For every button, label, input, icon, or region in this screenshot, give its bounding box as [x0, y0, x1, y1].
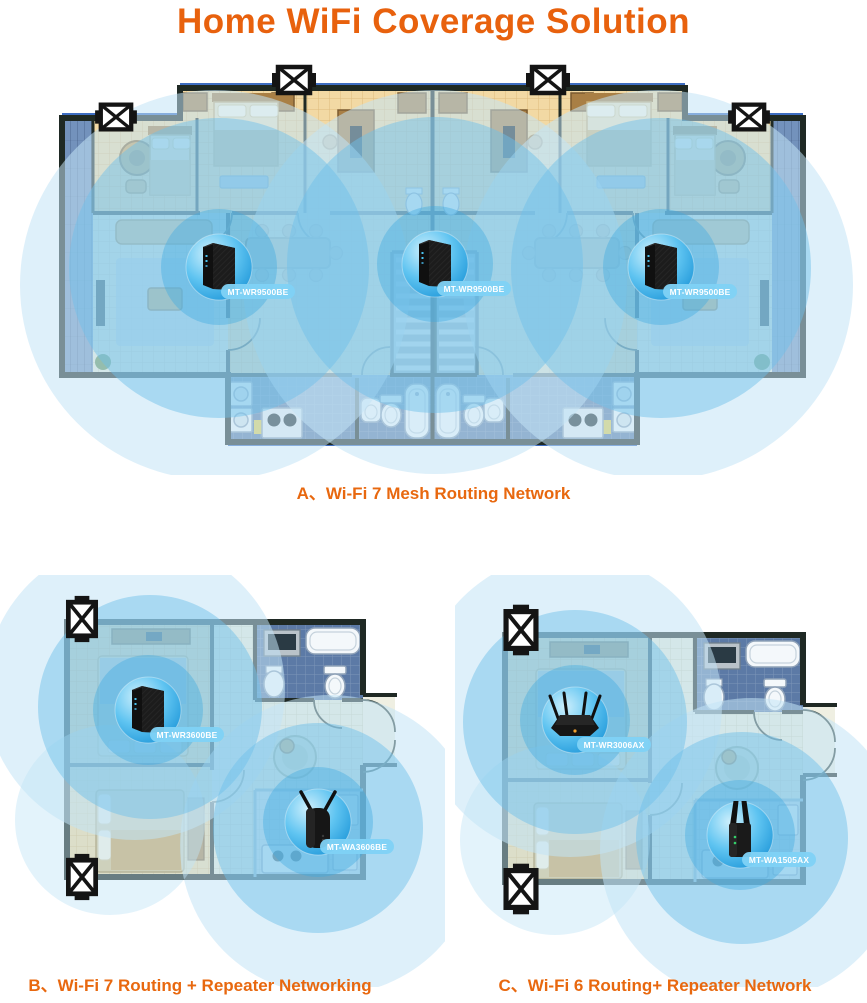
device-label: MT-WA3606BE [327, 842, 388, 852]
device-label: MT-WR3006AX [584, 740, 645, 750]
wifi7-router-icon [645, 243, 677, 290]
page-title: Home WiFi Coverage Solution [0, 2, 867, 42]
infographic-home-wifi-coverage: Home WiFi Coverage Solution [0, 0, 867, 1003]
floor-plan-b: MT-WR3600BE MT-WA3606BE [0, 575, 445, 987]
wifi7-router-icon [419, 240, 451, 287]
floor-plan-c: MT-WR3006AX MT-WA1505AX [455, 575, 867, 987]
device-label: MT-WR3600BE [157, 730, 218, 740]
device-label: MT-WR9500BE [444, 284, 505, 294]
device-label: MT-WR9500BE [670, 287, 731, 297]
caption-section-c: C、Wi-Fi 6 Routing+ Repeater Network [455, 971, 855, 996]
wifi7-router-icon [203, 243, 235, 290]
caption-section-a: A、Wi-Fi 7 Mesh Routing Network [0, 479, 867, 504]
device-label: MT-WR9500BE [228, 287, 289, 297]
floor-plan-a: MT-WR9500BE MT-WR9500BE MT-WR9500BE [0, 55, 867, 475]
device-label: MT-WA1505AX [749, 855, 810, 865]
wifi7-router-icon [132, 686, 164, 733]
caption-section-b: B、Wi-Fi 7 Routing + Repeater Networking [0, 971, 400, 996]
